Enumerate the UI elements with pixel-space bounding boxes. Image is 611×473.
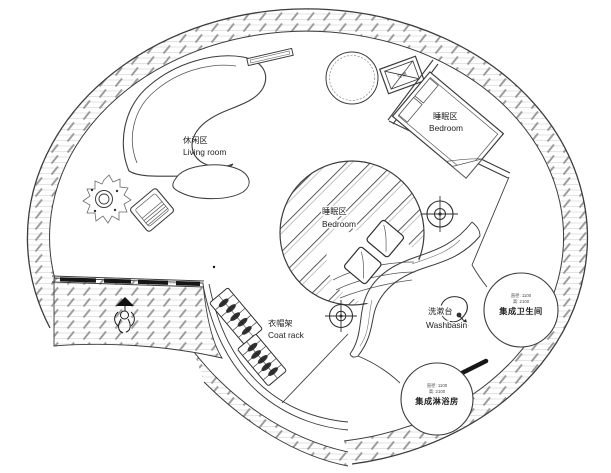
- upper-bedroom-label-zh: 睡眠区: [433, 112, 458, 121]
- center-bedroom-label-zh: 睡眠区: [322, 207, 347, 216]
- corridor-partition-upper: [472, 177, 509, 265]
- patio: [54, 278, 222, 358]
- bathroom-pod-dim1: 直径: 1100: [511, 292, 532, 298]
- potted-plant: [83, 175, 131, 223]
- coat-rack-label-zh: 衣帽架: [268, 318, 293, 328]
- shower-pod: 直径: 1100 高: 2100 集成淋浴房: [401, 363, 473, 435]
- crosshair-symbol-right: [422, 196, 458, 232]
- bathroom-pod-label: 集成卫生间: [498, 306, 542, 316]
- living-room-label-en: Living room: [183, 147, 226, 157]
- bathroom-pod-dim2: 高: 2100: [513, 298, 530, 305]
- plan-dot: [213, 266, 215, 268]
- round-table: [326, 52, 378, 104]
- floor-plan-canvas: 空调 睡眠区 Bedroom 睡眠区: [0, 0, 611, 473]
- floor-plan-page: 空调 睡眠区 Bedroom 睡眠区: [0, 0, 611, 473]
- center-bedroom: 睡眠区 Bedroom: [280, 161, 424, 305]
- accent-chair: [129, 188, 174, 233]
- center-bedroom-label-en: Bedroom: [322, 219, 356, 229]
- washbasin-label-en: Washbasin: [426, 320, 467, 330]
- washbasin-label-zh: 洗漱台: [428, 306, 453, 316]
- coat-rack-label: 衣帽架 Coat rack: [268, 318, 305, 340]
- shower-pod-dim1: 直径: 1100: [427, 382, 448, 388]
- shower-pod-dim2: 高: 2100: [429, 388, 446, 395]
- shower-pod-label: 集成淋浴房: [414, 396, 458, 406]
- wall-shelf: [247, 48, 293, 65]
- bathroom-pod: 直径: 1100 高: 2100 集成卫生间: [484, 273, 558, 347]
- upper-bedroom-label-en: Bedroom: [429, 123, 463, 133]
- living-room-label-zh: 休闲区: [183, 135, 208, 145]
- corridor-partition-lower: [282, 334, 348, 403]
- coat-rack-label-en: Coat rack: [268, 330, 305, 340]
